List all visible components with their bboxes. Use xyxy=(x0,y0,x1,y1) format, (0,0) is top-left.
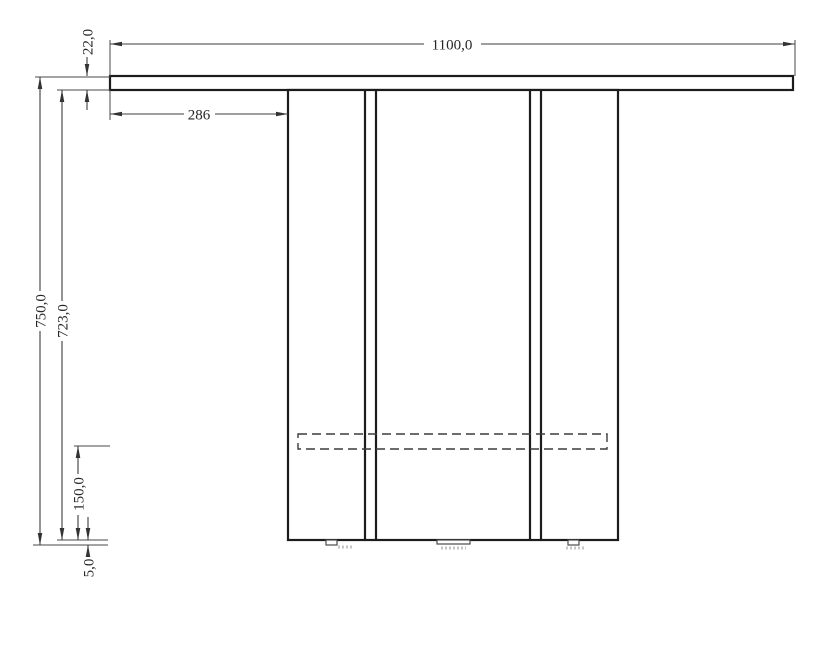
feet xyxy=(326,540,584,548)
foot-center xyxy=(437,540,470,544)
dim-top-width: 1100,0 xyxy=(110,37,795,53)
dim-top-thickness-label: 22,0 xyxy=(80,29,96,55)
dim-total-height: 750,0 xyxy=(33,77,49,545)
dim-overhang: 286 xyxy=(110,107,288,123)
technical-drawing: 1100,0 22,0 286 750,0 723,0 150,0 5,0 xyxy=(0,0,839,651)
dim-glide-height-label: 5,0 xyxy=(81,559,97,578)
dim-top-thickness: 22,0 xyxy=(80,29,96,110)
foot-left xyxy=(326,540,337,545)
dim-total-height-label: 750,0 xyxy=(33,294,49,328)
dim-stretcher-height: 150,0 xyxy=(71,446,87,540)
dim-glide-height: 5,0 xyxy=(81,517,97,577)
dim-pedestal-height-label: 723,0 xyxy=(55,304,71,338)
pedestal-outline xyxy=(288,90,618,540)
table-object xyxy=(110,76,793,548)
dim-stretcher-height-label: 150,0 xyxy=(71,477,87,511)
foot-right xyxy=(568,540,579,545)
dim-top-width-label: 1100,0 xyxy=(432,37,473,53)
dim-overhang-label: 286 xyxy=(188,107,211,123)
dim-pedestal-height: 723,0 xyxy=(55,90,71,540)
drawing-canvas: 1100,0 22,0 286 750,0 723,0 150,0 5,0 xyxy=(0,0,839,651)
tabletop xyxy=(110,76,793,90)
